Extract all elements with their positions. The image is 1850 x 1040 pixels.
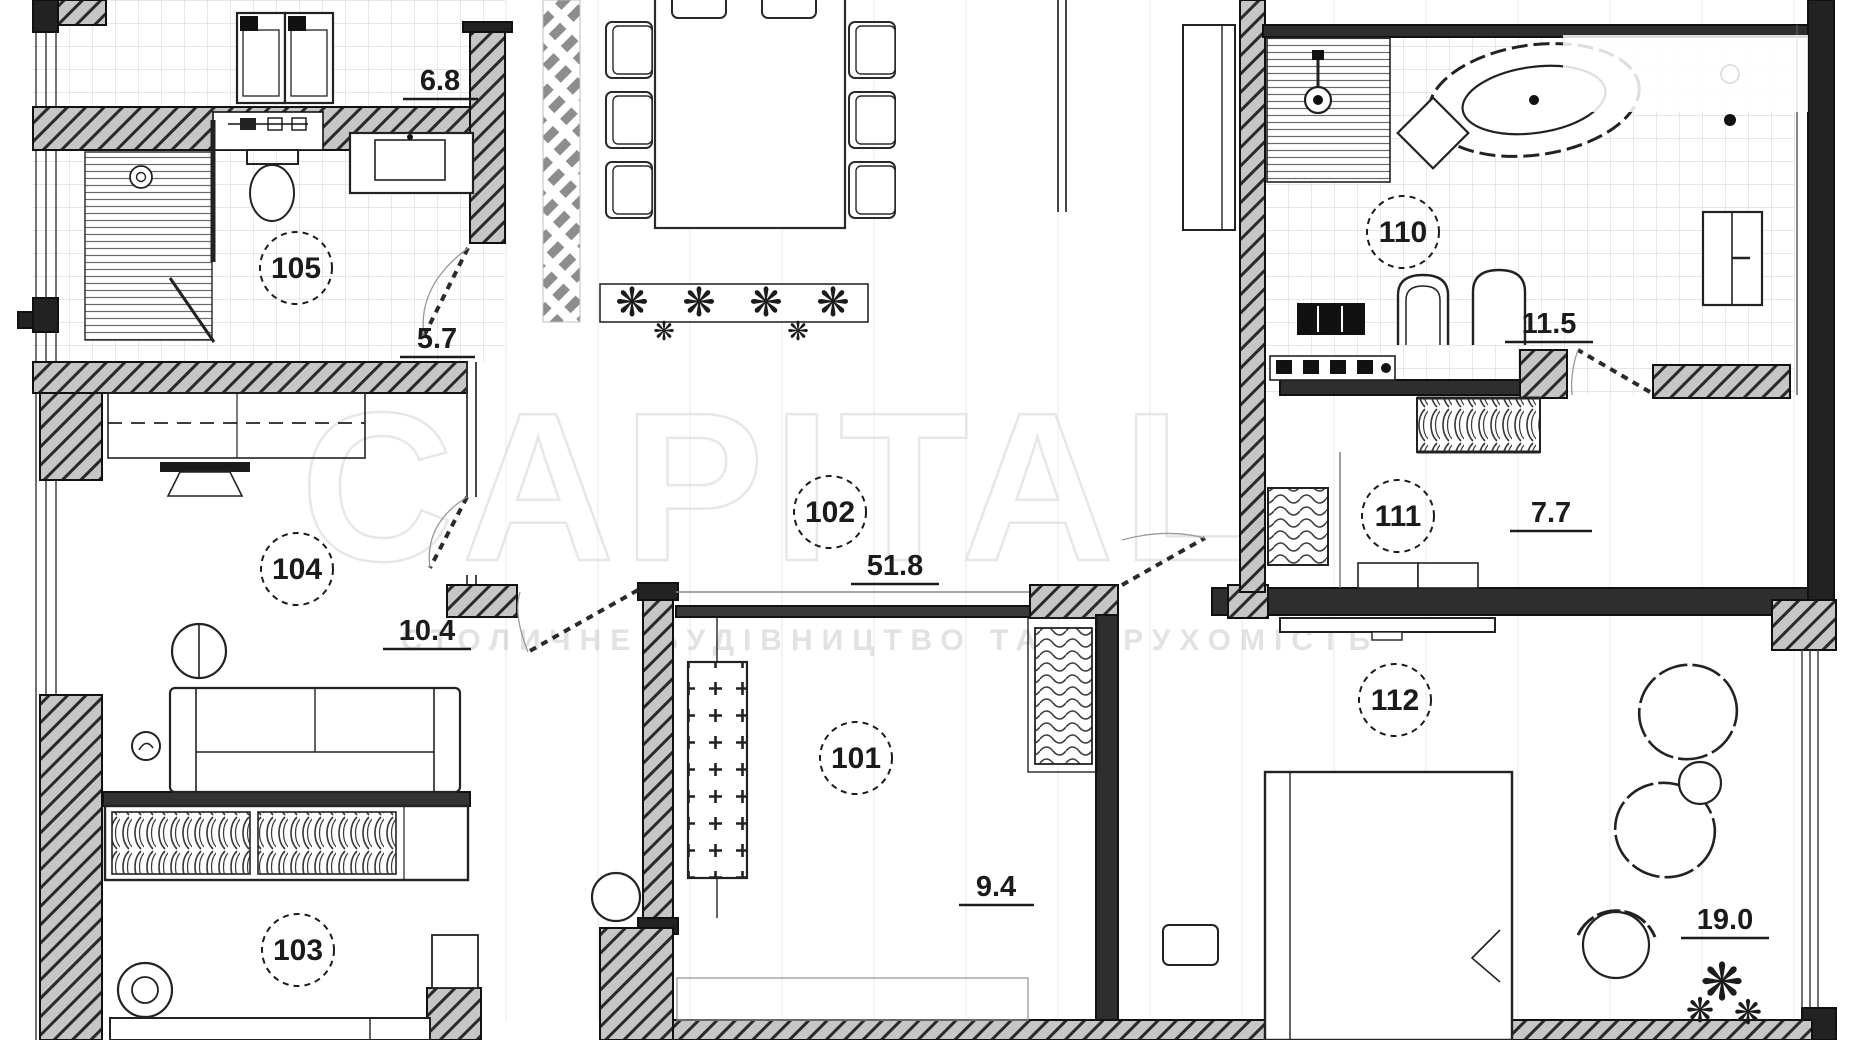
bidet-icon	[1473, 270, 1525, 345]
decorative-screen	[543, 0, 580, 322]
room-number: 110	[1379, 216, 1427, 249]
interior-wall	[1212, 588, 1812, 615]
exterior-wall-hatched	[40, 695, 102, 1040]
radiator-111	[1268, 488, 1328, 565]
wall-cap	[638, 583, 678, 600]
washer-icon	[237, 13, 285, 103]
svg-text:5.7: 5.7	[417, 323, 457, 355]
bench	[1163, 925, 1218, 965]
corner-stamp-overlay	[1563, 35, 1808, 112]
sink-vanity	[350, 133, 473, 193]
coat-rack	[688, 618, 747, 918]
room-number: 102	[805, 496, 855, 529]
wall-hatched	[58, 0, 106, 25]
interior-wall-hatched	[470, 30, 505, 243]
wall-pier-hatched	[1030, 585, 1118, 618]
room-number: 104	[272, 553, 322, 586]
watermark-main-text: CAPITAL	[301, 368, 1260, 605]
dining-chair	[849, 22, 895, 78]
floor-plan: CAPITAL СТОЛИЧНЕ БУДІВНИЦТВО ТА НЕРУХОМІ…	[0, 0, 1850, 1040]
wall-hatched	[600, 928, 673, 1040]
bathroom-bottom-wall	[1280, 380, 1540, 395]
svg-text:❋: ❋	[1686, 992, 1715, 1030]
threshold-bar	[676, 606, 1033, 617]
dryer-icon	[285, 13, 333, 103]
sofa	[170, 688, 460, 792]
svg-text:7.7: 7.7	[1531, 497, 1571, 529]
room-number: 112	[1371, 684, 1419, 717]
svg-text:❋: ❋	[615, 281, 649, 325]
room-number: 105	[271, 252, 321, 285]
tv-icon	[160, 462, 250, 496]
wall-pier-hatched	[1520, 350, 1567, 398]
pouf	[592, 873, 640, 921]
kitchen-console	[1270, 356, 1395, 380]
dining-chair	[606, 22, 652, 78]
svg-text:❋: ❋	[787, 316, 809, 346]
pouf-112	[1679, 762, 1721, 804]
dining-chair	[606, 162, 652, 218]
svg-text:❋: ❋	[816, 281, 850, 325]
wall-chunk	[33, 298, 58, 332]
room-number: 111	[1375, 500, 1422, 533]
svg-text:6.8: 6.8	[420, 65, 460, 97]
vanity-counter	[1297, 303, 1365, 335]
speaker-icon	[118, 963, 172, 1017]
dining-area: ❋❋ ❋❋ ❋❋	[600, 0, 895, 346]
dining-chair	[672, 0, 726, 18]
pantry-door-leaf	[1183, 25, 1235, 230]
hall-wall-hatched	[643, 600, 673, 920]
pedestal-table	[172, 624, 226, 678]
tall-cabinet	[1703, 212, 1762, 305]
right-wall	[1808, 0, 1834, 605]
wall-cap	[463, 22, 512, 32]
radiator-niche-101	[1028, 618, 1098, 772]
svg-text:❋: ❋	[1734, 994, 1763, 1032]
room-number: 101	[831, 742, 881, 775]
interior-wall-hatched	[33, 362, 467, 393]
svg-text:10.4: 10.4	[399, 615, 455, 647]
radiator-corridor	[1417, 398, 1540, 452]
wall-chunk	[33, 0, 58, 32]
wardrobe	[105, 806, 468, 880]
cabinet-small	[432, 935, 478, 988]
watermark-sub-text: СТОЛИЧНЕ БУДІВНИЦТВО ТА НЕРУХОМІСТЬ	[401, 624, 1379, 657]
wardrobe-row	[1358, 563, 1478, 588]
wall-hatched	[1653, 365, 1790, 398]
svg-text:❋: ❋	[682, 281, 716, 325]
interior-wall-hatched	[1240, 0, 1265, 592]
svg-text:❋: ❋	[749, 281, 783, 325]
svg-text:❋: ❋	[653, 316, 675, 346]
room-label-103: 103	[262, 914, 334, 986]
svg-text:11.5: 11.5	[1522, 308, 1577, 340]
wall-stub	[18, 312, 33, 328]
bed-112	[1265, 772, 1512, 1040]
wall-pier-hatched	[447, 585, 517, 617]
svg-text:9.4: 9.4	[976, 871, 1016, 903]
dining-chair	[762, 0, 816, 18]
toilet-icon	[1398, 275, 1448, 345]
bed-103	[110, 1018, 430, 1040]
room-number: 103	[273, 934, 323, 967]
dining-chair	[606, 92, 652, 148]
shower-area	[1267, 38, 1390, 182]
corner-wall-hatched	[1772, 600, 1836, 650]
wall-hatched	[427, 988, 481, 1040]
svg-text:51.8: 51.8	[867, 550, 923, 582]
shower-drain-icon	[130, 166, 152, 188]
dining-table	[655, 0, 845, 228]
dining-chair	[849, 92, 895, 148]
interior-wall	[103, 792, 470, 806]
svg-text:19.0: 19.0	[1697, 904, 1753, 936]
interior-wall	[1096, 615, 1118, 1022]
side-table	[132, 732, 160, 760]
bottom-wall-hatched	[673, 1020, 1812, 1040]
dining-chair	[849, 162, 895, 218]
laundry-room	[237, 13, 333, 103]
floor-plan-page: CAPITAL СТОЛИЧНЕ БУДІВНИЦТВО ТА НЕРУХОМІ…	[0, 0, 1850, 1040]
